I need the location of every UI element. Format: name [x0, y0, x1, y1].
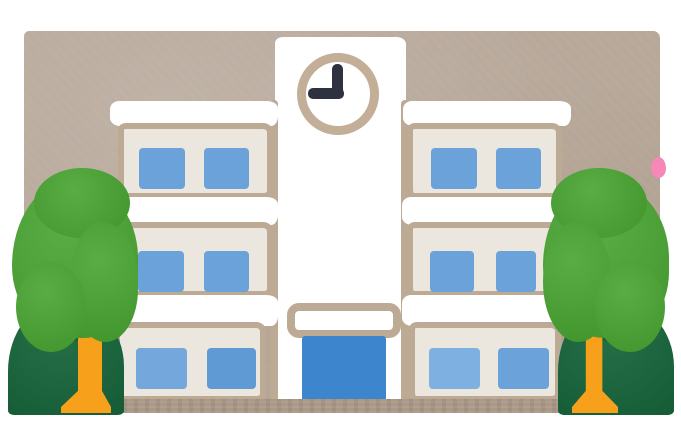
- right-wing-floor-slab-upper: [402, 197, 571, 225]
- window: [207, 348, 256, 389]
- window: [498, 348, 549, 389]
- ground-strip: [112, 399, 570, 413]
- left-wing-floor-slab-upper: [109, 197, 278, 225]
- window: [496, 148, 541, 189]
- clock-hour-hand: [308, 88, 344, 99]
- window: [136, 348, 187, 389]
- window: [138, 251, 184, 292]
- window: [429, 348, 480, 389]
- pink-blossom-peek: [651, 157, 666, 178]
- window: [139, 148, 185, 189]
- window: [204, 251, 249, 292]
- light-tree-right-canopy-bottom-lobe: [595, 262, 665, 352]
- window: [431, 148, 477, 189]
- window: [430, 251, 474, 292]
- entrance-door: [302, 336, 386, 402]
- entrance-sign-outline: [287, 303, 401, 338]
- school-illustration: [0, 0, 681, 429]
- window: [496, 251, 536, 292]
- light-tree-left-canopy-bottom-lobe: [16, 262, 86, 352]
- window: [204, 148, 249, 189]
